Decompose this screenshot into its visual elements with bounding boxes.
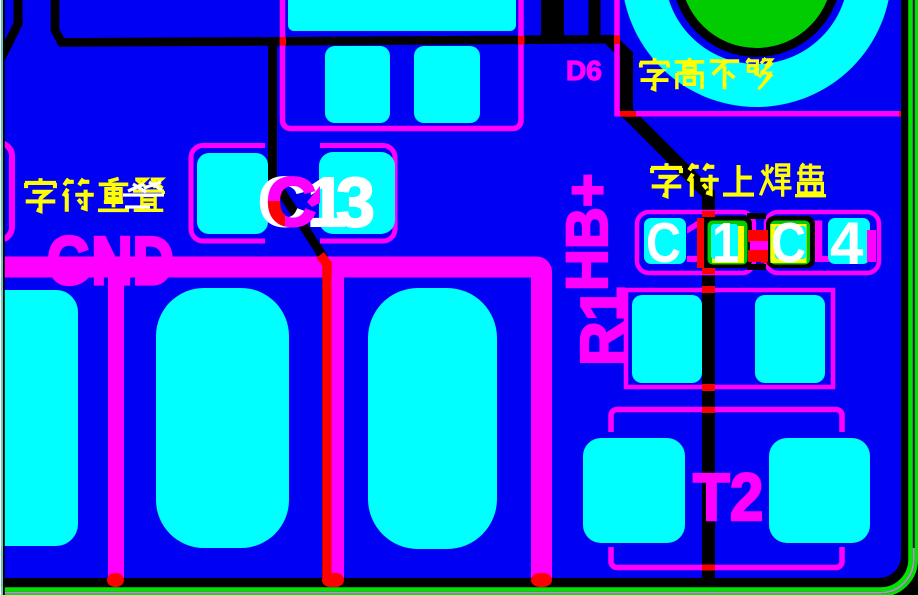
svg-text:D6: D6 [566, 55, 602, 86]
svg-text:HB+: HB+ [555, 173, 620, 291]
svg-text:T2: T2 [693, 459, 763, 535]
svg-text:C: C [646, 211, 681, 275]
svg-text:1: 1 [712, 211, 739, 275]
svg-text:4: 4 [830, 210, 864, 277]
svg-text:C: C [771, 211, 806, 275]
svg-text:3: 3 [336, 163, 375, 241]
